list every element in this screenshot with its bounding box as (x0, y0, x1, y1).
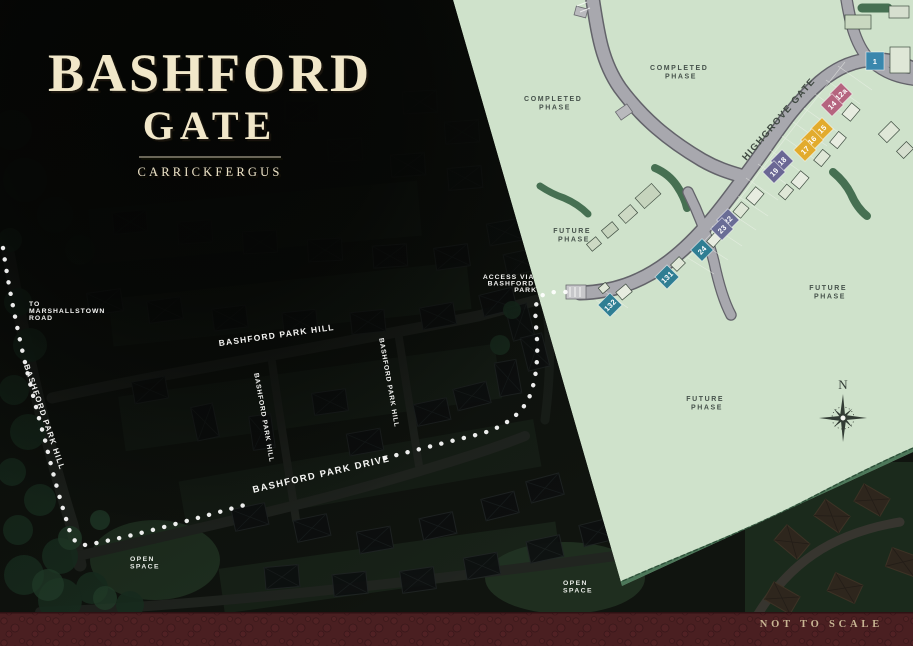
site-map-canvas: 112a141516171819222324131132 COMPLETED P… (0, 0, 913, 646)
open-space-label: OPEN SPACE (563, 580, 593, 595)
future-phase-label: FUTURE PHASE (553, 228, 595, 244)
site-map: 112a141516171819222324131132 COMPLETED P… (0, 0, 913, 646)
development-name: BASHFORD (48, 43, 372, 103)
location-subtitle: CARRICKFERGUS (137, 165, 282, 179)
footer-bar: NOT TO SCALE (0, 612, 913, 646)
open-space-label: OPEN SPACE (130, 556, 160, 571)
compass-north-label: N (838, 377, 848, 392)
scale-note: NOT TO SCALE (760, 619, 883, 630)
future-phase-label: FUTURE PHASE (809, 285, 851, 301)
future-phase-label: FUTURE PHASE (686, 396, 728, 412)
road-end-stub (566, 285, 586, 299)
plot-number: 1 (873, 57, 877, 66)
plot-marker-1: 1 (866, 52, 884, 70)
development-name-line2: GATE (143, 103, 277, 148)
